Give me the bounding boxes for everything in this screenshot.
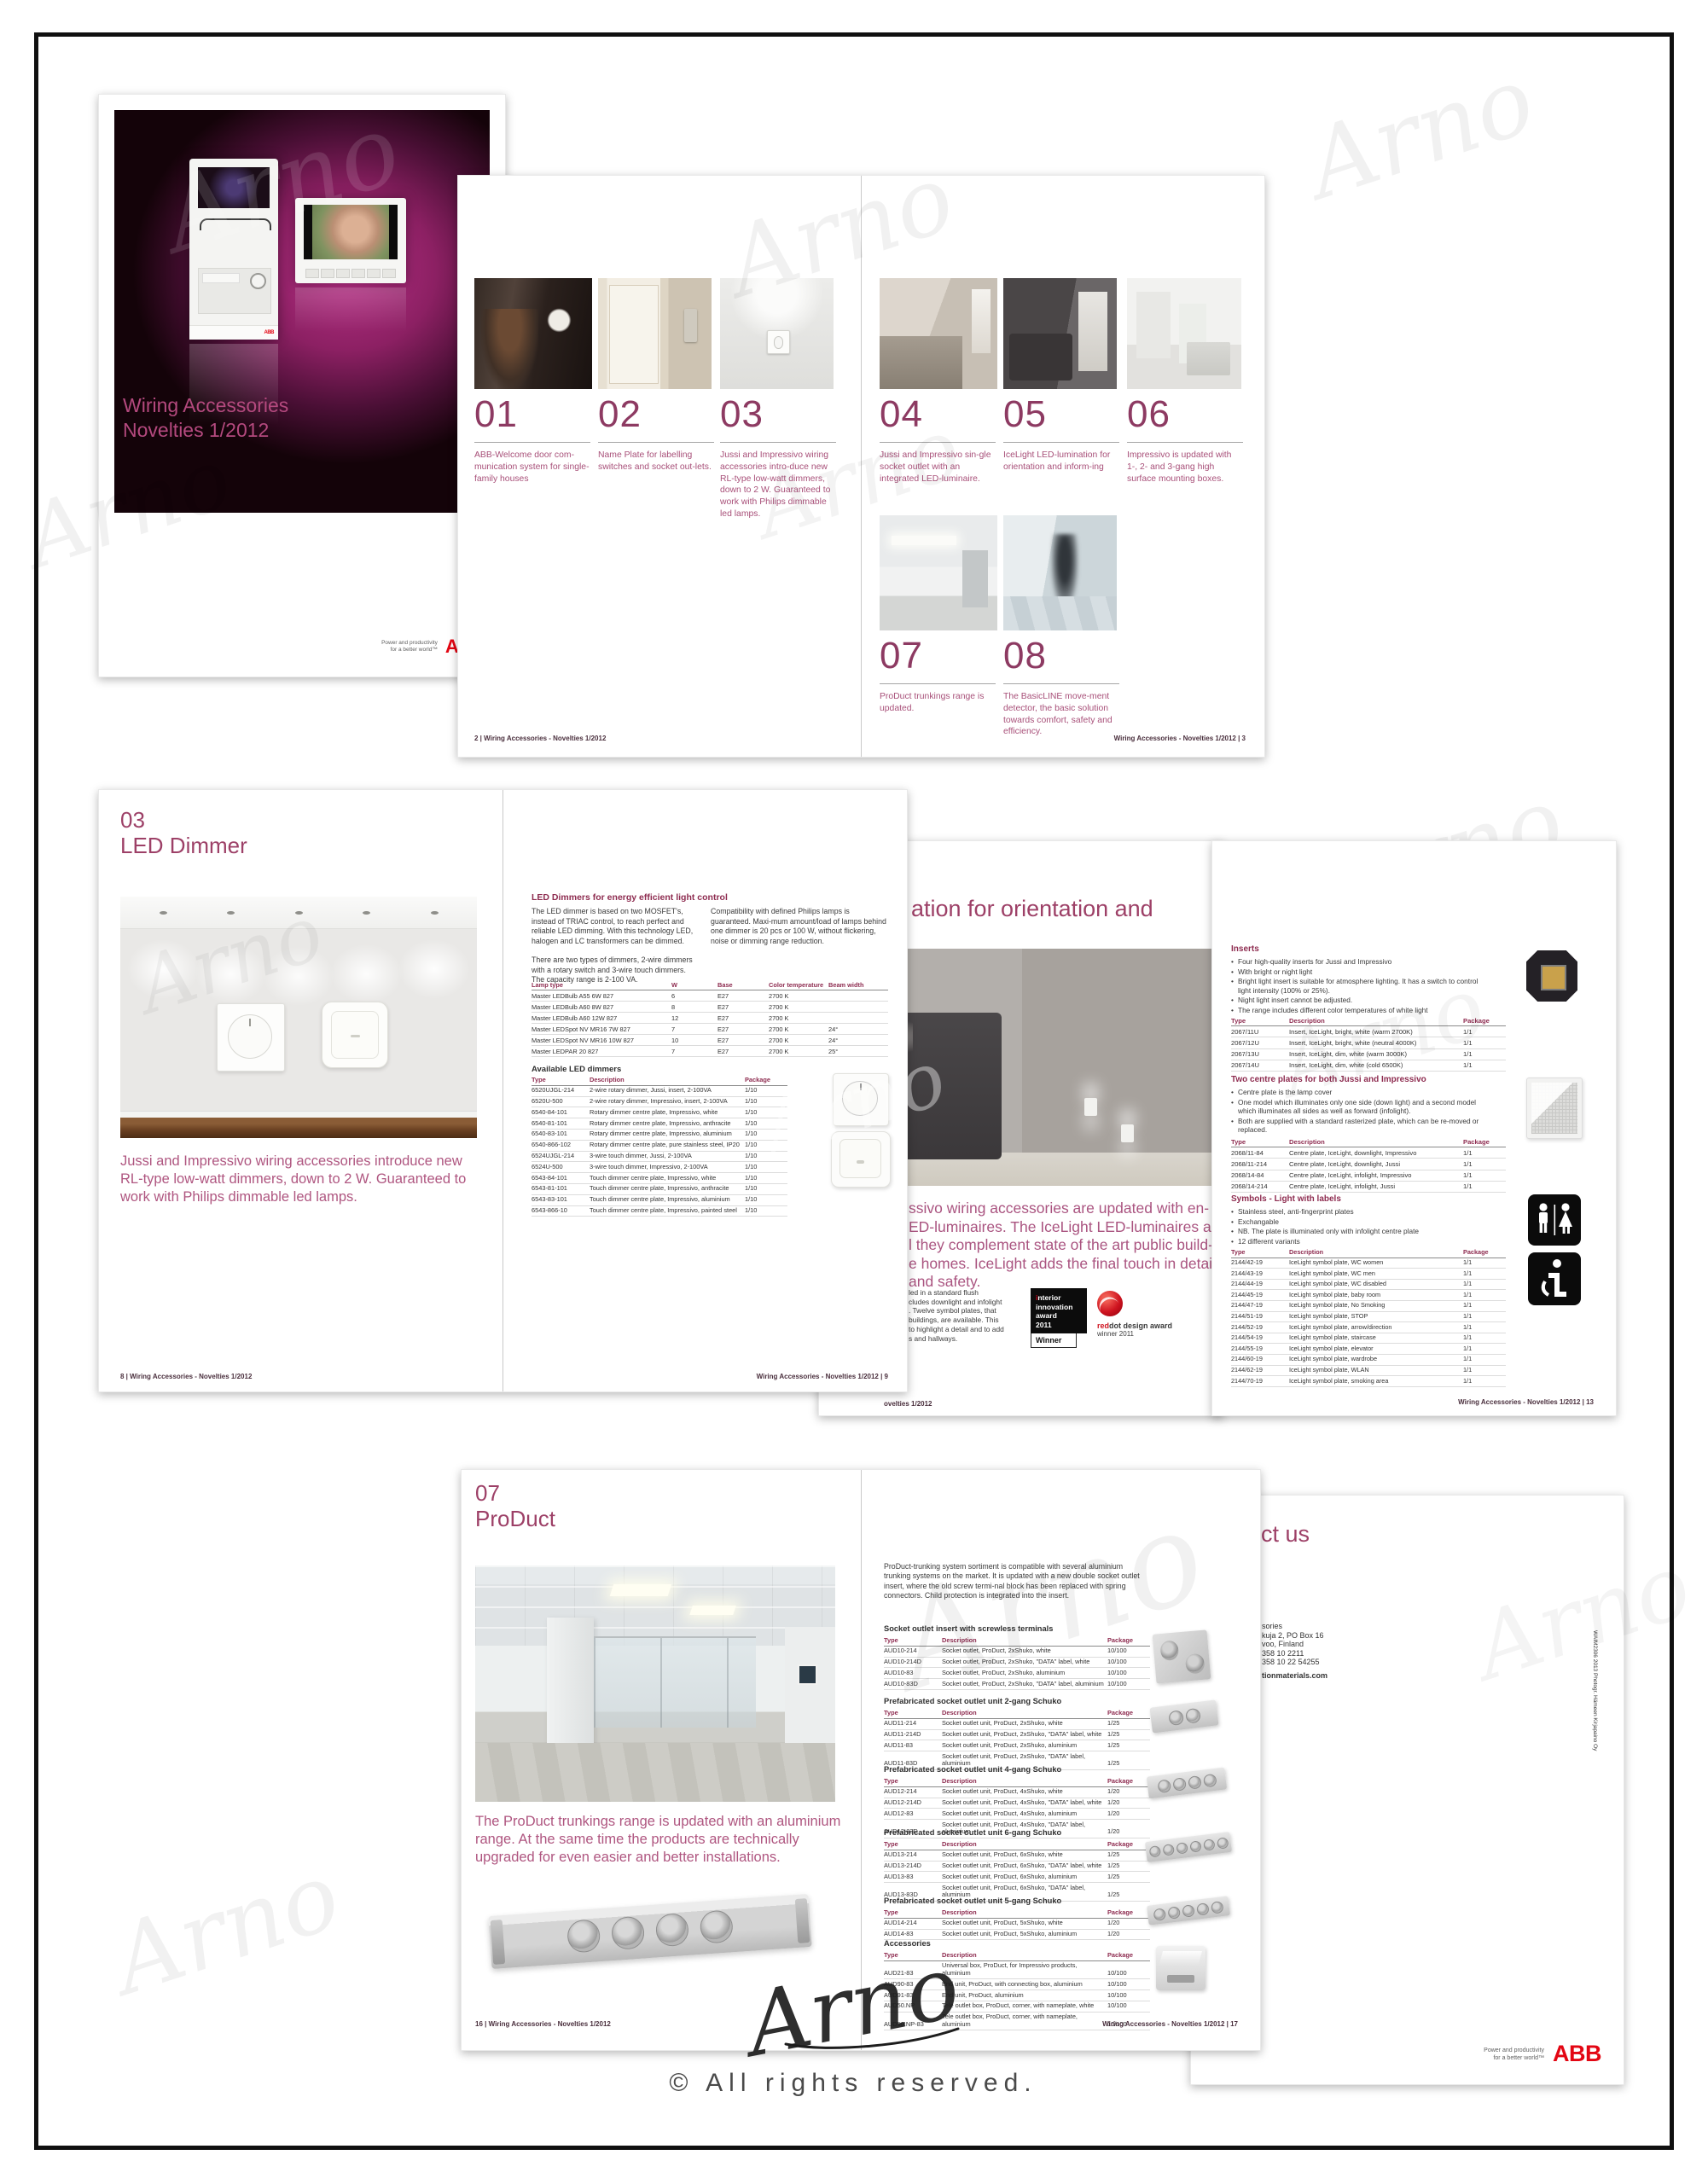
door-station-camera [198, 167, 270, 208]
table-cell: Universal box, ProDuct, for Impressivo p… [942, 1961, 1107, 1979]
table-row: 6540-81-101Rotary dimmer centre plate, I… [532, 1118, 787, 1130]
list-item: led in a standard flush [909, 1288, 1004, 1298]
carpet-floor [475, 1743, 835, 1802]
table-cell: 6520U-500 [532, 1097, 590, 1107]
table-row: 2144/52-19IceLight symbol plate, arrow/d… [1231, 1322, 1506, 1333]
reddot-subtitle: winner 2011 [1097, 1330, 1172, 1338]
cover-title-line2: Novelties 1/2012 [123, 418, 288, 443]
abb-tagline: Power and productivity for a better worl… [1484, 2047, 1544, 2062]
table-cell: 10/100 [1107, 2001, 1150, 2012]
list-item: buildings, are available. This [909, 1316, 1004, 1325]
table-cell: AUD12-214D [884, 1798, 942, 1809]
copyright-text: © All rights reserved. [669, 2069, 1037, 2098]
table-cell: Touch dimmer centre plate, Impressivo, a… [590, 1195, 745, 1205]
table-cell: Socket outlet, ProDuct, 2xShuko, "DATA" … [942, 1679, 1107, 1689]
table-cell: 1/1 [1463, 1258, 1506, 1269]
table-cell: 6524U-500 [532, 1162, 590, 1172]
inserts-table: Type Description Package 2067/11UInsert,… [1231, 1015, 1506, 1072]
table-cell: 2700 K [769, 990, 828, 1001]
centre-plates-table: Type Description Package 2068/11-84Centr… [1231, 1136, 1506, 1193]
table-cell: 1/1 [1463, 1322, 1506, 1333]
white-column [547, 1618, 594, 1755]
table-cell: 1/1 [1463, 1280, 1506, 1290]
cover-artwork: ABB Wiring Accessories Novelties 1/2012 [114, 110, 490, 513]
table-cell: 2144/70-19 [1231, 1376, 1289, 1386]
table-row: AUD11-214Socket outlet unit, ProDuct, 2x… [884, 1719, 1150, 1730]
table-cell: AUD12-214 [884, 1787, 942, 1798]
table-cell: 2144/47-19 [1231, 1301, 1289, 1311]
table-cell: 10/100 [1107, 1969, 1150, 1979]
contact-heading-fragment: ct us [1261, 1521, 1310, 1548]
product-section-5: Prefabricated socket outlet unit 5-gang … [884, 1896, 1150, 1940]
table-cell: Master LEDSpot NV MR16 10W 827 [532, 1035, 671, 1045]
chapter-number: 03 [120, 807, 247, 833]
table-cell: AUD13-83 [884, 1872, 942, 1882]
table-cell: 1/20 [1107, 1787, 1150, 1798]
table-cell: 1/1 [1463, 1333, 1506, 1344]
page-footer-left: 16 | Wiring Accessories - Novelties 1/20… [475, 2020, 611, 2028]
list-item: s and hallways. [909, 1334, 1004, 1344]
table-row: AUD10-83DSocket outlet, ProDuct, 2xShuko… [884, 1679, 1150, 1690]
contact-footer: Power and productivity for a better worl… [1484, 2041, 1601, 2067]
ceiling [120, 897, 477, 929]
socket-unit-2gang-image [1149, 1699, 1218, 1733]
table-row: Master LEDSpot NV MR16 10W 82710E272700 … [532, 1035, 888, 1046]
table-cell: 6 [671, 990, 717, 1001]
table-cell: 2067/12U [1231, 1037, 1289, 1048]
table-row: AUD10-214DSocket outlet, ProDuct, 2xShuk… [884, 1658, 1150, 1669]
novelty-caption: IceLight LED-lumination for orientation … [1003, 450, 1119, 473]
table-row: 6524UJGL-2143-wire touch dimmer, Jussi, … [532, 1152, 787, 1163]
table-cell: Rotary dimmer centre plate, Impressivo, … [590, 1118, 745, 1129]
table-cell: IceLight symbol plate, arrow/direction [1289, 1322, 1463, 1333]
photo-product-trunking [880, 515, 997, 630]
table-cell: IceLight symbol plate, staircase [1289, 1333, 1463, 1344]
abb-mark: ABB [264, 330, 275, 335]
table-cell: 1/10 [745, 1141, 787, 1151]
novelty-item-08: 08 The BasicLINE move-ment detector, the… [1003, 515, 1121, 738]
table-row: 2144/55-19IceLight symbol plate, elevato… [1231, 1344, 1506, 1355]
table-cell: 2700 K [769, 1013, 828, 1023]
photo-led-dimmer [720, 278, 834, 389]
list-item: voo, Finland [1262, 1640, 1324, 1649]
table-row: AUD13-83Socket outlet unit, ProDuct, 6xS… [884, 1872, 1150, 1883]
double-socket-product-image [1153, 1629, 1211, 1683]
centre-plates-bullets: Centre plate is the lamp coverOne model … [1231, 1088, 1487, 1136]
table-cell: E27 [717, 1035, 769, 1045]
table-cell: 1/20 [1107, 1798, 1150, 1809]
table-row: 2144/44-19IceLight symbol plate, WC disa… [1231, 1280, 1506, 1291]
table-row: 2068/14-214Centre plate, IceLight, infol… [1231, 1182, 1506, 1193]
table-cell: Socket outlet unit, ProDuct, 2xShuko, al… [942, 1740, 1107, 1751]
table-row: AUD11-214DSocket outlet unit, ProDuct, 2… [884, 1730, 1150, 1741]
table-cell: 1/10 [745, 1152, 787, 1162]
table-cell: IceLight symbol plate, STOP [1289, 1312, 1463, 1322]
rotary-dimmer [217, 1003, 285, 1072]
table-cell: 24° [828, 1024, 888, 1034]
table-cell: 1/1 [1463, 1312, 1506, 1322]
product-section-1: Socket outlet insert with screwless term… [884, 1624, 1150, 1690]
rule [880, 683, 996, 684]
table-cell: 2068/14-84 [1231, 1170, 1289, 1181]
info-symbol-icon [1528, 1252, 1581, 1305]
table-cell: 7 [671, 1024, 717, 1034]
chapter-paragraph: The ProDuct trunkings range is updated w… [475, 1813, 844, 1867]
table-cell: 2067/13U [1231, 1049, 1289, 1060]
rule [598, 442, 714, 443]
award-winner-label: Winner [1031, 1333, 1077, 1348]
table-cell: Master LEDBulb A55 6W 827 [532, 990, 671, 1001]
table-header: Lamp type W Base Color temperature Beam … [532, 979, 888, 990]
table-cell: 10/100 [1107, 1647, 1150, 1657]
novelty-item-02: 02 Name Plate for labelling switches and… [598, 278, 716, 473]
touch-dimmer-product-image [831, 1131, 891, 1188]
icelight-heading-fragment: ation for orientation and [911, 896, 1153, 922]
list-item: With bright or night light [1231, 967, 1487, 977]
table-row: AUD13-214DSocket outlet unit, ProDuct, 6… [884, 1862, 1150, 1873]
table-row: 2144/43-19IceLight symbol plate, WC men1… [1231, 1269, 1506, 1280]
socket-unit-6gang-image [1145, 1832, 1232, 1862]
table-cell: 10 [671, 1035, 717, 1045]
table-cell: 2144/54-19 [1231, 1333, 1289, 1344]
table-cell: Insert, IceLight, bright, white (neutral… [1289, 1037, 1463, 1048]
table-cell: 1/1 [1463, 1037, 1506, 1048]
chapter-number: 07 [475, 1480, 555, 1506]
symbols-heading: Symbols - Light with labels [1231, 1194, 1341, 1204]
table-cell: 8 [671, 1002, 717, 1012]
table-cell: 7 [671, 1046, 717, 1056]
table-cell: 10/100 [1107, 1668, 1150, 1678]
rule [1003, 442, 1119, 443]
touch-dimmer [322, 1002, 388, 1068]
novelty-item-06: 06 Impressivo is updated with 1-, 2- and… [1127, 278, 1245, 485]
table-cell: 1/25 [1107, 1719, 1150, 1729]
ceiling-light [689, 1606, 735, 1615]
monitor-screen [304, 205, 398, 259]
table-row: AUD10-83Socket outlet, ProDuct, 2xShuko,… [884, 1668, 1150, 1679]
list-item: . Twelve symbol plates, that [909, 1306, 1004, 1316]
page-footer-left: 2 | Wiring Accessories - Novelties 1/201… [474, 735, 606, 742]
table-cell: 2-wire rotary dimmer, Impressivo, insert… [590, 1097, 745, 1107]
rule [1003, 683, 1119, 684]
table-cell: AUD14-214 [884, 1919, 942, 1929]
table-cell: 10/100 [1107, 1658, 1150, 1668]
table-row: AUD14-214Socket outlet unit, ProDuct, 5x… [884, 1919, 1150, 1930]
table-cell: Rotary dimmer centre plate, Impressivo, … [590, 1107, 745, 1118]
inserts-bullets: Four high-quality inserts for Jussi and … [1231, 957, 1487, 1016]
novelty-item-04: 04 Jussi and Impressivo sin-gle socket o… [880, 278, 997, 485]
table-cell: 1/25 [1107, 1872, 1150, 1882]
symbols-table: Type Description Package 2144/42-19IceLi… [1231, 1247, 1506, 1387]
table-row: 2144/42-19IceLight symbol plate, WC wome… [1231, 1258, 1506, 1269]
table-row: 2068/11-214Centre plate, IceLight, downl… [1231, 1159, 1506, 1170]
table-cell: E27 [717, 1024, 769, 1034]
rule [880, 442, 996, 443]
product-section-2: Prefabricated socket outlet unit 2-gang … [884, 1697, 1150, 1770]
table-header: Type Description Package [1231, 1136, 1506, 1147]
table-cell: 2067/14U [1231, 1060, 1289, 1071]
list-item: 358 10 2211 [1262, 1649, 1324, 1658]
interior-innovation-award-badge: interior innovation award 2011 Winner [1031, 1288, 1087, 1348]
novelty-number: 02 [598, 395, 716, 434]
reflection [295, 288, 406, 332]
table-cell: Rotary dimmer centre plate, Impressivo, … [590, 1130, 745, 1140]
table-cell: 1/10 [745, 1206, 787, 1217]
table-cell: 6543-84-101 [532, 1173, 590, 1183]
monitor-keys [305, 269, 396, 278]
dimmer-table: Type Description Package 6520UJGL-2142-w… [532, 1075, 787, 1217]
table-row: 2144/47-19IceLight symbol plate, No Smok… [1231, 1301, 1506, 1312]
page-footer-right: Wiring Accessories - Novelties 1/2012 | … [1102, 2020, 1238, 2028]
table-cell: 1/1 [1463, 1269, 1506, 1279]
novelty-caption: The BasicLINE move-ment detector, the ba… [1003, 691, 1119, 738]
table-cell: 1/10 [745, 1162, 787, 1172]
table-cell: 10/100 [1107, 1990, 1150, 2001]
table-cell: Touch dimmer centre plate, Impressivo, p… [590, 1206, 745, 1217]
right-wall [785, 1627, 835, 1743]
table-cell: Master LEDSpot NV MR16 7W 827 [532, 1024, 671, 1034]
table-row: 2144/51-19IceLight symbol plate, STOP1/1 [1231, 1312, 1506, 1323]
table-cell: AUD10-83 [884, 1668, 942, 1678]
table-row: 2144/45-19IceLight symbol plate, baby ro… [1231, 1290, 1506, 1301]
table-cell: 1/25 [1107, 1850, 1150, 1861]
table-cell: 10/100 [1107, 1679, 1150, 1689]
icelight-insert-product-image [1526, 950, 1577, 1002]
table-cell: Touch dimmer centre plate, Impressivo, w… [590, 1173, 745, 1183]
table-cell: 1/1 [1463, 1376, 1506, 1386]
available-dimmers-heading: Available LED dimmers [532, 1065, 621, 1074]
novelty-item-03: 03 Jussi and Impressivo wiring accessori… [720, 278, 838, 520]
wc-symbol-icon [1528, 1194, 1581, 1246]
table-cell: E27 [717, 990, 769, 1001]
chapter-heading: 03 LED Dimmer [120, 807, 247, 858]
product-table: TypeDescriptionPackage AUD10-214Socket o… [884, 1635, 1150, 1690]
print-code-vertical-text: WAIM2306 2013 Photogr. Hämeen Kirjapaino… [1592, 1630, 1598, 1751]
table-cell: Socket outlet unit, ProDuct, 2xShuko, wh… [942, 1719, 1107, 1729]
contact-web-fragment: tionmaterials.com [1262, 1671, 1327, 1680]
socket-unit-5gang-image [1147, 1896, 1230, 1926]
icelight-wall-light [1084, 1098, 1097, 1116]
door-station-nameplate [198, 268, 271, 314]
novelty-number: 07 [880, 636, 997, 676]
table-cell: 2144/60-19 [1231, 1355, 1289, 1365]
photo-icelight [1003, 278, 1117, 389]
table-row: 6543-84-101Touch dimmer centre plate, Im… [532, 1173, 787, 1184]
spread-novelties-overview: 01 ABB-Welcome door com-munication syste… [457, 175, 1265, 758]
table-cell: 2068/11-214 [1231, 1159, 1289, 1169]
list-item: e homes. IceLight adds the final touch i… [909, 1255, 1224, 1274]
table-cell: 2700 K [769, 1035, 828, 1045]
table-cell: IceLight symbol plate, WC disabled [1289, 1280, 1463, 1290]
table-row: 2144/62-19IceLight symbol plate, WLAN1/1 [1231, 1366, 1506, 1377]
list-item: sories [1262, 1622, 1324, 1631]
product-intro: ProDuct-trunking system sortiment is com… [884, 1562, 1144, 1600]
table-cell: AUD13-214D [884, 1862, 942, 1872]
photo-office-interior [475, 1565, 835, 1802]
novelty-number: 01 [474, 395, 592, 434]
ceiling-light [610, 1584, 671, 1596]
table-row: 2068/11-84Centre plate, IceLight, downli… [1231, 1147, 1506, 1159]
table-cell: Socket outlet unit, ProDuct, 2xShuko, "D… [942, 1730, 1107, 1740]
table-cell: Socket outlet unit, ProDuct, 4xShuko, "D… [942, 1798, 1107, 1809]
table-cell: IceLight symbol plate, No Smoking [1289, 1301, 1463, 1311]
table-cell: 2144/55-19 [1231, 1344, 1289, 1354]
page-footer-right: Wiring Accessories - Novelties 1/2012 | … [1458, 1398, 1594, 1406]
rule [474, 442, 590, 443]
rotary-dimmer-product-image [833, 1073, 889, 1126]
spread-led-dimmer: 03 LED Dimmer Jussi and Impressivo wirin… [98, 789, 908, 1392]
table-cell: IceLight symbol plate, baby room [1289, 1290, 1463, 1300]
table-cell: Socket outlet unit, ProDuct, 6xShuko, al… [942, 1872, 1107, 1882]
table-row: 2067/14UInsert, IceLight, dim, white (co… [1231, 1060, 1506, 1072]
table-header: Type Description Package [1231, 1015, 1506, 1026]
table-cell: AUD11-83 [884, 1740, 942, 1751]
socket-unit-4gang-image [1147, 1767, 1227, 1798]
led-text-col2: Compatibility with defined Philips lamps… [711, 907, 888, 946]
table-row: 6543-81-101Touch dimmer centre plate, Im… [532, 1184, 787, 1195]
table-row: Master LEDBulb A55 6W 8276E272700 K [532, 990, 888, 1002]
table-cell: 2068/14-214 [1231, 1182, 1289, 1192]
table-row: Master LEDSpot NV MR16 7W 8277E272700 K2… [532, 1024, 888, 1035]
table-row: Master LEDPAR 20 8277E272700 K25° [532, 1046, 888, 1057]
photo-mounting-boxes [1127, 278, 1241, 389]
table-row: 6540-866-102Rotary dimmer centre plate, … [532, 1141, 787, 1152]
table-cell: End unit, ProDuct, aluminium [942, 1990, 1107, 2001]
novelty-caption: Jussi and Impressivo wiring accessories … [720, 450, 836, 520]
rule [1127, 442, 1243, 443]
table-cell: 1/1 [1463, 1290, 1506, 1300]
chapter-heading: 07 ProDuct [475, 1480, 555, 1531]
table-cell: 10/100 [1107, 1979, 1150, 1989]
novelty-number: 05 [1003, 395, 1121, 434]
novelty-caption: ABB-Welcome door com-munication system f… [474, 450, 590, 485]
list-item: cludes downlight and infolight [909, 1298, 1004, 1307]
table-cell: 2068/11-84 [1231, 1147, 1289, 1158]
product-section-3: Prefabricated socket outlet unit 4-gang … [884, 1765, 1150, 1838]
cover-title: Wiring Accessories Novelties 1/2012 [123, 393, 288, 443]
table-cell: 1/10 [745, 1173, 787, 1183]
novelty-item-01: 01 ABB-Welcome door com-munication syste… [474, 278, 592, 485]
table-cell: AUD10-214 [884, 1647, 942, 1657]
novelty-number: 08 [1003, 636, 1121, 676]
wall-display [798, 1664, 817, 1684]
table-row: AUD10-214Socket outlet, ProDuct, 2xShuko… [884, 1647, 1150, 1658]
table-header: Type Description Package [532, 1075, 787, 1086]
table-cell: 1/1 [1463, 1060, 1506, 1071]
table-cell: 2144/45-19 [1231, 1290, 1289, 1300]
photo-name-plate [598, 278, 712, 389]
table-cell: 6524UJGL-214 [532, 1152, 590, 1162]
video-monitor-image [295, 198, 406, 283]
table-cell: 6540-83-101 [532, 1130, 590, 1140]
table-cell: Socket outlet unit, ProDuct, 4xShuko, al… [942, 1809, 1107, 1819]
table-cell: IceLight symbol plate, WC men [1289, 1269, 1463, 1279]
table-cell: 3-wire touch dimmer, Impressivo, 2-100VA [590, 1162, 745, 1172]
table-row: 6540-83-101Rotary dimmer centre plate, I… [532, 1130, 787, 1141]
table-cell [828, 1009, 888, 1012]
table-cell: IceLight symbol plate, WLAN [1289, 1366, 1463, 1376]
table-cell: 1/10 [745, 1118, 787, 1129]
table-cell: 6520UJGL-214 [532, 1086, 590, 1096]
table-cell: 2-wire rotary dimmer, Jussi, insert, 2-1… [590, 1086, 745, 1096]
table-cell: 1/20 [1107, 1809, 1150, 1819]
table-cell [828, 998, 888, 1001]
table-cell: 6540-866-102 [532, 1141, 590, 1151]
table-row: 6520U-5002-wire rotary dimmer, Impressiv… [532, 1097, 787, 1108]
product-table: TypeDescriptionPackage AUD13-214Socket o… [884, 1839, 1150, 1902]
table-cell: AUD11-214 [884, 1719, 942, 1729]
table-cell: 6543-866-10 [532, 1206, 590, 1217]
list-item: Both are supplied with a standard raster… [1231, 1117, 1487, 1135]
table-cell: Touch dimmer centre plate, Impressivo, a… [590, 1184, 745, 1194]
table-cell: 1/10 [745, 1107, 787, 1118]
aluminium-strip [488, 1894, 811, 1969]
table-cell: 1/1 [1463, 1182, 1506, 1192]
table-cell: Socket outlet, ProDuct, 2xShuko, "DATA" … [942, 1658, 1107, 1668]
table-row: AUD13-214Socket outlet unit, ProDuct, 6x… [884, 1850, 1150, 1862]
novelty-caption: Jussi and Impressivo sin-gle socket outl… [880, 450, 996, 485]
centre-plate-product-image [1526, 1077, 1583, 1139]
table-cell: 6540-81-101 [532, 1118, 590, 1129]
table-cell: 1/10 [745, 1086, 787, 1096]
page-footer-right: Wiring Accessories - Novelties 1/2012 | … [1114, 735, 1246, 742]
table-cell: 1/20 [1107, 1919, 1150, 1929]
table-cell: Centre plate, IceLight, downlight, Impre… [1289, 1147, 1463, 1158]
table-cell: 1/20 [1107, 1930, 1150, 1940]
table-cell: Insert, IceLight, dim, white (warm 3000K… [1289, 1049, 1463, 1060]
table-cell: 1/1 [1463, 1355, 1506, 1365]
product-table: TypeDescriptionPackage AUD14-214Socket o… [884, 1908, 1150, 1940]
abb-tagline: Power and productivity for a better worl… [381, 640, 438, 654]
table-row: 6524U-5003-wire touch dimmer, Impressivo… [532, 1162, 787, 1173]
chapter-title: ProDuct [475, 1506, 555, 1531]
table-cell: 6543-83-101 [532, 1195, 590, 1205]
table-row: 6543-83-101Touch dimmer centre plate, Im… [532, 1195, 787, 1206]
table-cell: E27 [717, 1046, 769, 1056]
table-cell: 1/25 [1107, 1730, 1150, 1740]
table-cell: Socket outlet, ProDuct, 2xShuko, white [942, 1647, 1107, 1657]
table-cell: 1/25 [1107, 1740, 1150, 1751]
novelty-item-07: 07 ProDuct trunkings range is updated. [880, 515, 997, 715]
chapter-paragraph: Jussi and Impressivo wiring accessories … [120, 1153, 480, 1206]
table-cell: 6543-81-101 [532, 1184, 590, 1194]
table-cell: AUD12-83 [884, 1809, 942, 1819]
skirting [120, 1111, 477, 1118]
end-box-product-image [1156, 1946, 1205, 1990]
signature-underline [781, 2024, 964, 2054]
table-cell: 1/1 [1463, 1170, 1506, 1181]
list-item: 358 10 22 54255 [1262, 1658, 1324, 1667]
led-section-heading: LED Dimmers for energy efficient light c… [532, 892, 728, 903]
table-cell: 2700 K [769, 1046, 828, 1056]
table-cell: Socket outlet unit, ProDuct, 5xShuko, al… [942, 1930, 1107, 1940]
table-cell: 2067/11U [1231, 1026, 1289, 1037]
glass-wall [594, 1636, 756, 1728]
table-cell: IceLight symbol plate, smoking area [1289, 1376, 1463, 1386]
table-cell: 2144/62-19 [1231, 1366, 1289, 1376]
table-row: 2068/14-84Centre plate, IceLight, infoli… [1231, 1170, 1506, 1182]
photo-door-communication [474, 278, 592, 389]
table-cell: AUD10-214D [884, 1658, 942, 1668]
table-cell: 1/1 [1463, 1049, 1506, 1060]
table-cell: 1/1 [1463, 1026, 1506, 1037]
list-item: l they complement state of the art publi… [909, 1236, 1224, 1255]
table-cell: 6540-84-101 [532, 1107, 590, 1118]
table-row: 6520UJGL-2142-wire rotary dimmer, Jussi,… [532, 1086, 787, 1097]
list-item: ssivo wiring accessories are updated wit… [909, 1199, 1224, 1218]
rule [720, 442, 836, 443]
award-box: interior innovation award 2011 [1031, 1288, 1087, 1333]
